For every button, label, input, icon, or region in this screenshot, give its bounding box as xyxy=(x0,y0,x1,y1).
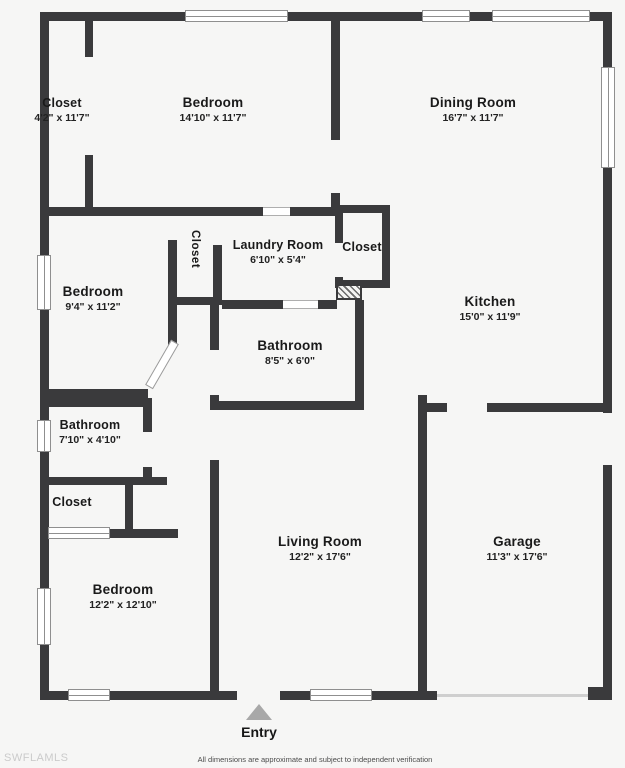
wall xyxy=(168,240,177,348)
window-icon xyxy=(68,689,110,701)
door-threshold xyxy=(283,300,318,309)
window-icon xyxy=(422,10,470,22)
wall xyxy=(222,300,283,309)
room-name: Dining Room xyxy=(430,95,516,111)
room-dimensions: 12'2" x 12'10" xyxy=(89,598,157,613)
room-dimensions: 9'4" x 11'2" xyxy=(63,300,124,315)
room-dimensions: 11'3" x 17'6" xyxy=(486,550,547,565)
wall xyxy=(290,207,337,216)
window-icon xyxy=(185,10,288,22)
room-name: Closet xyxy=(34,95,89,111)
room-label-bathroom-left: Bathroom 7'10" x 4'10" xyxy=(59,417,121,448)
room-name: Bathroom xyxy=(59,417,121,433)
wall xyxy=(603,465,612,700)
wall xyxy=(331,12,340,140)
room-name: Closet xyxy=(189,230,201,268)
utility-hatch-area xyxy=(336,284,362,300)
wall xyxy=(318,300,337,309)
wall xyxy=(588,687,612,700)
room-label-laundry-room: Laundry Room 6'10" x 5'4" xyxy=(233,237,324,268)
disclaimer-text: All dimensions are approximate and subje… xyxy=(165,755,465,764)
door-threshold xyxy=(263,207,290,216)
room-label-closet-top-right: Closet xyxy=(342,239,381,255)
wall xyxy=(40,477,167,485)
room-dimensions: 16'7" x 11'7" xyxy=(430,111,516,126)
wall xyxy=(40,452,49,588)
room-name: Laundry Room xyxy=(233,237,324,253)
room-name: Bedroom xyxy=(89,582,157,598)
wall xyxy=(280,691,310,700)
room-label-closet-left: Closet xyxy=(52,494,91,510)
wall xyxy=(40,207,263,216)
room-label-dining-room: Dining Room 16'7" x 11'7" xyxy=(430,95,516,126)
wall xyxy=(40,398,148,407)
room-dimensions: 15'0" x 11'9" xyxy=(459,310,520,325)
room-name: Bedroom xyxy=(63,284,124,300)
window-icon xyxy=(310,689,372,701)
room-label-living-room: Living Room 12'2" x 17'6" xyxy=(278,534,362,565)
wall xyxy=(603,12,612,67)
watermark: SWFLAMLS xyxy=(4,752,69,764)
room-label-closet-top-left: Closet 4'2" x 11'7" xyxy=(34,95,89,126)
room-label-bedroom-top: Bedroom 14'10" x 11'7" xyxy=(180,95,247,126)
wall xyxy=(40,691,68,700)
wall xyxy=(85,12,93,57)
wall xyxy=(335,205,343,243)
room-name: Bedroom xyxy=(180,95,247,111)
room-name: Bathroom xyxy=(257,338,322,354)
room-name: Garage xyxy=(486,534,547,550)
entry-label: Entry xyxy=(241,724,277,740)
entry-arrow-icon xyxy=(246,704,272,720)
wall xyxy=(110,529,178,538)
wall xyxy=(40,389,148,398)
wall xyxy=(382,205,390,288)
window-icon xyxy=(492,10,590,22)
window-icon xyxy=(37,420,51,452)
room-dimensions: 8'5" x 6'0" xyxy=(257,354,322,369)
window-icon xyxy=(48,527,110,539)
wall xyxy=(143,398,152,432)
wall xyxy=(418,395,427,691)
room-dimensions: 6'10" x 5'4" xyxy=(233,253,324,268)
wall xyxy=(210,401,364,410)
wall xyxy=(40,12,49,255)
window-icon xyxy=(37,588,51,645)
window-icon xyxy=(37,255,51,310)
room-name: Closet xyxy=(342,239,381,255)
wall xyxy=(40,12,185,21)
room-dimensions: 7'10" x 4'10" xyxy=(59,433,121,448)
wall xyxy=(210,460,219,691)
room-label-garage: Garage 11'3" x 17'6" xyxy=(486,534,547,565)
wall xyxy=(110,691,237,700)
room-name: Living Room xyxy=(278,534,362,550)
garage-door-line xyxy=(437,694,588,697)
room-label-kitchen: Kitchen 15'0" x 11'9" xyxy=(459,294,520,325)
wall xyxy=(470,12,492,21)
wall xyxy=(372,691,437,700)
wall xyxy=(85,155,93,216)
room-dimensions: 14'10" x 11'7" xyxy=(180,111,247,126)
room-label-bedroom-middle: Bedroom 9'4" x 11'2" xyxy=(63,284,124,315)
room-label-closet-vertical: Closet xyxy=(189,230,201,268)
room-dimensions: 4'2" x 11'7" xyxy=(34,111,89,126)
wall xyxy=(487,403,612,412)
angled-door xyxy=(145,340,179,390)
room-label-bathroom-center: Bathroom 8'5" x 6'0" xyxy=(257,338,322,369)
room-dimensions: 12'2" x 17'6" xyxy=(278,550,362,565)
room-name: Kitchen xyxy=(459,294,520,310)
wall xyxy=(210,300,219,350)
wall xyxy=(355,300,364,410)
room-label-bedroom-bottom: Bedroom 12'2" x 12'10" xyxy=(89,582,157,613)
wall xyxy=(603,168,612,413)
wall xyxy=(213,245,222,305)
floor-plan: Closet 4'2" x 11'7" Bedroom 14'10" x 11'… xyxy=(0,0,625,768)
window-icon xyxy=(601,67,615,168)
room-name: Closet xyxy=(52,494,91,510)
wall xyxy=(288,12,422,21)
